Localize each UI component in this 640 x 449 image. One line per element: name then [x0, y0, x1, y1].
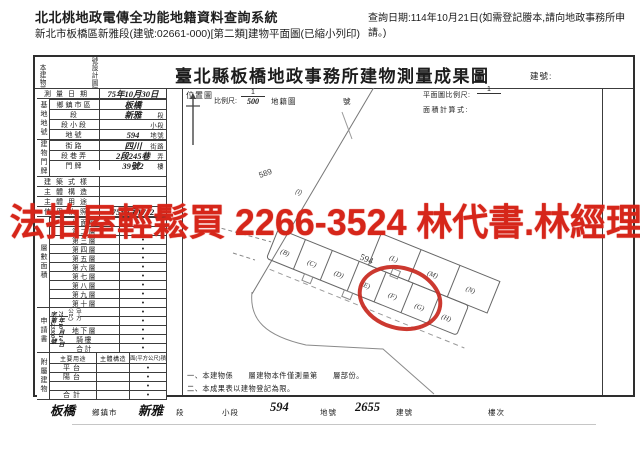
annex-area-dot: • — [130, 364, 166, 372]
attribute-row: 建築式樣 — [37, 176, 166, 186]
annex-structure-cell — [97, 382, 130, 390]
field-label: 主體用途 — [37, 197, 100, 206]
annex-section-label: 附屬建物 — [37, 353, 50, 399]
footer-field: 段 — [176, 407, 185, 418]
parcel-band: (B) (C) (D) (E) (F) (G) (H) (L) (M) (N) … — [214, 177, 500, 351]
site-section: 基地地號 鄉鎮市區 板橋 段 新雅 段 — [37, 98, 166, 139]
field-label: 段小段 — [50, 120, 100, 129]
field-label: 主體構造 — [37, 187, 100, 196]
floor-label: 騎樓 — [50, 335, 120, 343]
floor-row: 地面層 • — [50, 217, 166, 226]
site-row: 鄉鎮市區 板橋 — [50, 99, 166, 109]
floor-area-label: 層數面積 — [37, 217, 49, 307]
dashed-boundary — [222, 223, 272, 248]
floor-row: 第五層 • — [50, 253, 166, 262]
annex-structure-cell — [97, 364, 130, 372]
annex-row: • — [50, 381, 166, 390]
floor-row: 騎樓 • — [50, 334, 166, 343]
field-value: 594 地號 — [100, 130, 166, 139]
field-label: 地號 — [50, 130, 100, 139]
cadastral-sketch: (B) (C) (D) (E) (F) (G) (H) (L) (M) (N) … — [182, 88, 602, 399]
floor-row: 第八層 • — [50, 280, 166, 289]
annex-row: 陽台 • — [50, 372, 166, 381]
floor-area-dot: • — [120, 308, 166, 316]
floor-row: 第六層 • — [50, 262, 166, 271]
field-value — [100, 187, 166, 196]
building-info-table: 測量日期 75年10月30日 基地地號 鄉鎮市區 板橋 段 — [37, 88, 167, 400]
floor-area-dot: • — [120, 290, 166, 298]
annex-header-structure: 主體構造 — [97, 353, 130, 363]
survey-date-row: 測量日期 75年10月30日 — [37, 88, 166, 98]
floor-area-dot: • — [120, 326, 166, 334]
floor-label: 第七層 — [50, 272, 120, 280]
footer-field: 594 — [270, 400, 289, 415]
parcel-label: (H) — [440, 313, 453, 324]
survey-date-label: 測量日期 — [37, 89, 100, 98]
annex-header-area: 面(平方公尺)積 — [130, 353, 166, 363]
floor-area-dot: • — [120, 272, 166, 280]
field-label: 建築式樣 — [37, 177, 100, 186]
dashed-boundary — [233, 253, 255, 260]
parcel-label: (F) — [387, 291, 399, 302]
footer-location-strip: 板橋鄉鎮市新雅段小段594地號2655建號樓次 — [33, 398, 637, 426]
field-value: 39號2 樓 — [100, 161, 166, 170]
site-section-label: 基地地號 — [37, 99, 50, 139]
parcel-label: (N) — [465, 285, 477, 296]
annex-label: 陽台 — [50, 373, 97, 381]
floor-area-dot: • — [120, 263, 166, 271]
floor-row: 第四層 • — [50, 244, 166, 253]
stair-notch — [342, 290, 353, 300]
floor-area-dot: • — [120, 218, 166, 226]
floor-label — [50, 317, 120, 325]
attribute-row: 主體用途 — [37, 196, 166, 206]
footer-field: 小段 — [222, 407, 239, 418]
parcel-label: (D) — [333, 269, 346, 280]
floor-total-row: 合計 • — [50, 343, 166, 352]
floor-row: 地下層 • — [50, 325, 166, 334]
attribute-row: 使用執照 75使字1712 號 — [37, 206, 166, 216]
footer-field: 地號 — [320, 407, 337, 418]
annex-header-use: 主要用途 — [50, 353, 97, 363]
footer-underline — [72, 424, 596, 425]
floor-label: 地下層 — [50, 326, 120, 334]
floor-row: 第三層 • — [50, 235, 166, 244]
field-label: 門牌 — [50, 161, 100, 170]
annex-label — [50, 382, 97, 390]
field-label: 街路 — [50, 141, 100, 150]
floor-row: 第二層 • — [50, 226, 166, 235]
query-date: 查詢日期:114年10月21日(如需登記謄本,請向地政事務所申請。) — [368, 9, 640, 39]
lot-number-589: 589 — [258, 167, 274, 180]
parcel-label: (B) — [279, 247, 291, 258]
floor-area-dot: • — [120, 299, 166, 307]
road-tick — [342, 112, 352, 139]
floor-label: 第八層 — [50, 281, 120, 289]
field-value: 新雅 段 — [100, 110, 166, 119]
floor-row: 第七層 • — [50, 271, 166, 280]
annex-header-row: 主要用途 主體構造 面(平方公尺)積 — [50, 353, 166, 363]
parcel-label-i: (I) — [294, 188, 303, 197]
field-label: 段 — [50, 110, 100, 119]
annex-section: 附屬建物 主要用途 主體構造 面(平方公尺)積 平台 • 陽台 — [37, 352, 166, 399]
field-label: 段巷弄 — [50, 151, 100, 160]
field-value: 小段 — [100, 120, 166, 129]
floor-label: 第五層 — [50, 254, 120, 262]
print-info-line: 新北市板橋區新雅段(建號:02661-000)[第二類]建物平面圖(已縮小列印) — [35, 26, 360, 41]
floor-label: 地面層 — [50, 218, 120, 226]
stair-notch — [302, 274, 313, 284]
footer-field: 樓次 — [488, 407, 505, 418]
system-title: 北北桃地政電傳全功能地籍資料查詢系統 — [35, 7, 278, 26]
field-label: 鄉鎮市區 — [50, 100, 100, 109]
floor-area-dot: • — [120, 245, 166, 253]
area-unit-label: (平方公尺) — [68, 308, 80, 325]
address-row: 門牌 39號2 樓 — [50, 160, 166, 170]
site-row: 地號 594 地號 — [50, 129, 166, 139]
floor-label: 第三層 — [50, 236, 120, 244]
address-row: 街路 四川 街路 — [50, 140, 166, 150]
floor-section-labels: 層數面積 申請書 75年10月14日 字第23300號 — [37, 217, 50, 352]
site-row: 段小段 小段 — [50, 119, 166, 129]
parcel-label: (G) — [413, 302, 426, 313]
floor-area-dot: • — [120, 317, 166, 325]
floor-area-dot: • — [120, 254, 166, 262]
attribute-row: 主體構造 — [37, 186, 166, 196]
annex-area-dot: • — [130, 373, 166, 381]
floor-label: 第二層 — [50, 227, 120, 235]
floor-label: 第九層 — [50, 290, 120, 298]
floor-area-dot: • — [120, 344, 166, 352]
field-value: 75使字1712 號 — [100, 207, 166, 216]
survey-date-value: 75年10月30日 — [100, 89, 166, 98]
floor-label: 第十層 — [50, 299, 120, 307]
note-line-2: 二、本成果表以建物登記為限。 — [187, 384, 295, 394]
floor-area-dot: • — [120, 281, 166, 289]
floor-label: 第四層 — [50, 245, 120, 253]
building-no-label: 建號: — [530, 70, 552, 82]
floor-area-dot: • — [120, 236, 166, 244]
annex-structure-cell — [97, 373, 130, 381]
parcel-label: (L) — [388, 254, 400, 265]
annex-area-dot: • — [130, 382, 166, 390]
annex-row: 平台 • — [50, 363, 166, 372]
footer-field: 鄉鎮市 — [92, 407, 118, 418]
field-value — [100, 177, 166, 186]
site-row: 段 新雅 段 — [50, 109, 166, 119]
floor-row: 第九層 • — [50, 289, 166, 298]
application-label: 申請書 — [37, 307, 49, 352]
footer-field: 新雅 — [138, 400, 163, 419]
footer-field: 建號 — [396, 407, 413, 418]
floor-total-label: 合計 — [50, 344, 120, 352]
address-section: 建物門牌 街路 四川 街路 段巷弄 2段245巷 弄 — [37, 139, 166, 176]
floor-area-dot: • — [120, 335, 166, 343]
floor-label — [50, 308, 120, 316]
right-column-divider — [602, 88, 603, 395]
parcel-label: (C) — [306, 258, 318, 269]
form-title: 臺北縣板橋地政事務所建物測量成果圖 — [175, 62, 490, 87]
footer-field: 板橋 — [50, 400, 75, 419]
floor-row: 第十層 • — [50, 298, 166, 307]
note-line-1: 一、本建物係 層建物本件僅測量第 層部份。 — [187, 371, 364, 381]
floor-area-section: 層數面積 申請書 75年10月14日 字第23300號 地面層 • 第二層 • — [37, 216, 166, 352]
floor-label: 第六層 — [50, 263, 120, 271]
floor-area-dot: • — [120, 227, 166, 235]
survey-result-form: 臺北縣板橋地政事務所建物測量成果圖 建號: 測量日期 75年10月30日 基地地… — [33, 55, 635, 397]
footer-field: 2655 — [355, 400, 380, 415]
address-section-label: 建物門牌 — [37, 140, 50, 176]
address-row: 段巷弄 2段245巷 弄 — [50, 150, 166, 160]
field-label: 使用執照 — [37, 207, 100, 216]
annex-label: 平台 — [50, 364, 97, 372]
